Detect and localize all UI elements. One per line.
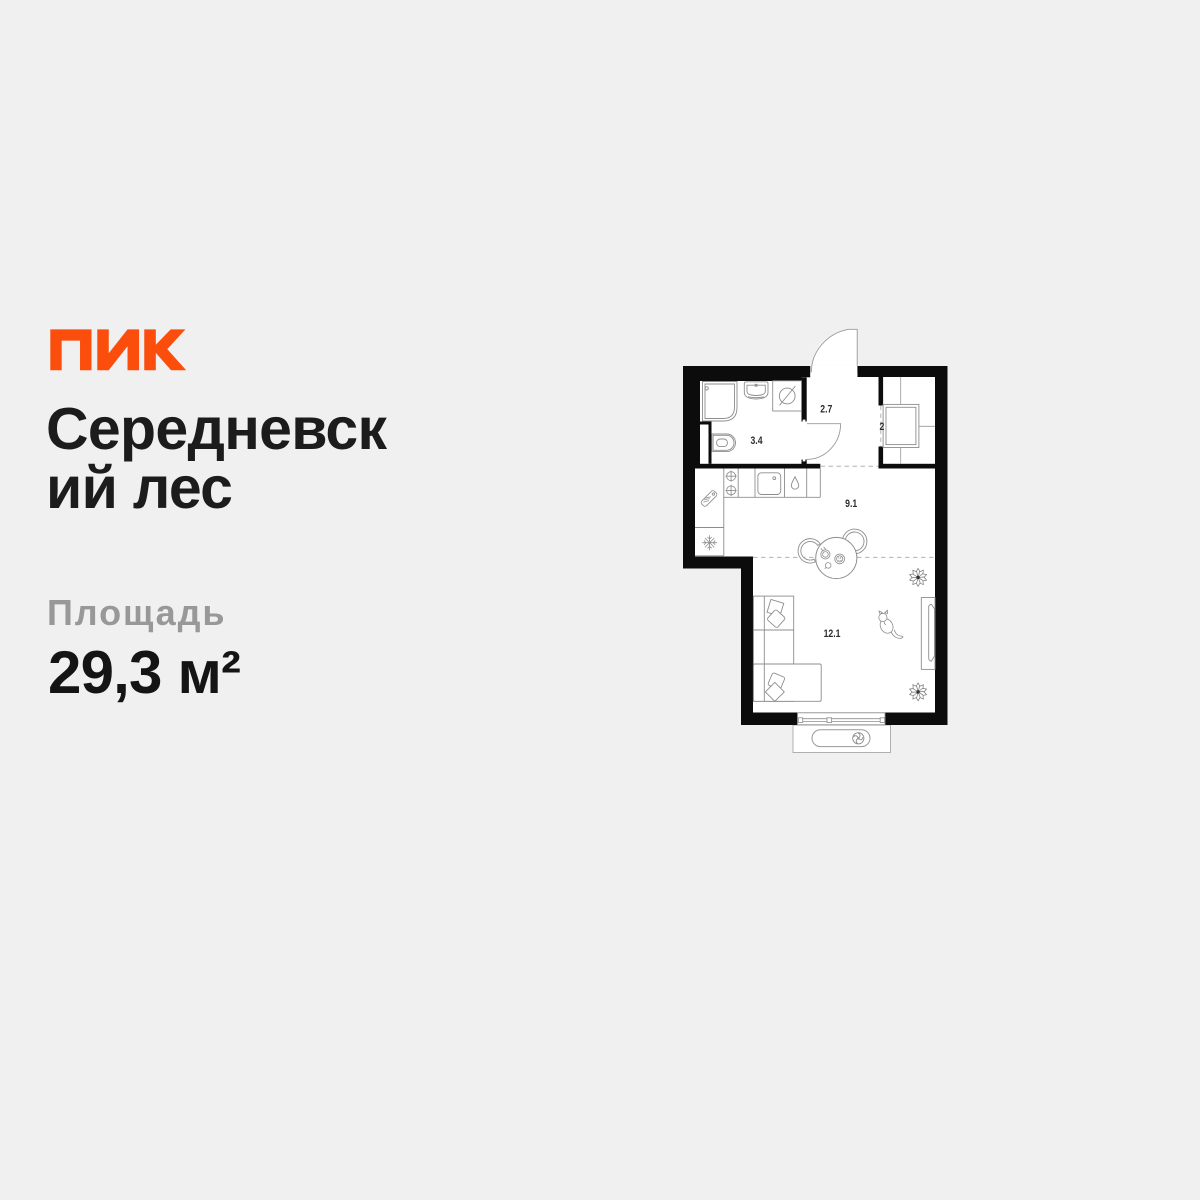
svg-text:2: 2 xyxy=(879,421,884,433)
svg-text:3.4: 3.4 xyxy=(750,435,762,447)
svg-text:9.1: 9.1 xyxy=(845,498,857,510)
svg-text:12.1: 12.1 xyxy=(824,628,841,640)
svg-text:2.7: 2.7 xyxy=(820,403,832,415)
